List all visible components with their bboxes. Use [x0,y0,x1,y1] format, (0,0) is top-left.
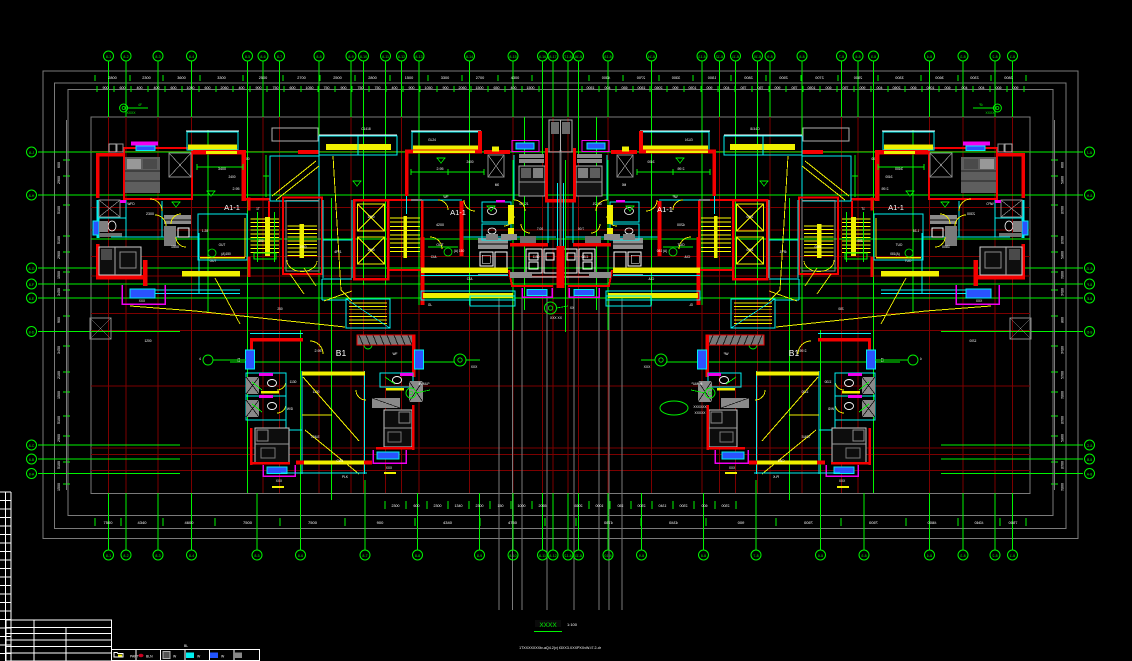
svg-text:XX: XX [570,306,575,310]
svg-text:XXX XX: XXX XX [550,316,563,320]
svg-text:A1-1: A1-1 [657,205,673,214]
svg-text:B1: B1 [789,348,800,358]
svg-text:B1: B1 [336,348,347,358]
svg-text:A1-1: A1-1 [224,203,240,212]
svg-text:XXXXX: XXXXX [695,411,707,415]
svg-text:PART: PART [130,655,139,659]
svg-text:BL: BL [184,644,188,648]
svg-text:1:100: 1:100 [567,622,578,627]
svg-text:XXXX: XXXX [539,622,557,629]
svg-text:BLN: BLN [146,655,153,659]
svg-text:XXXXXX: XXXXXX [693,405,707,409]
svg-text:1TXXXXXXXtv-aQ4.2(v) t3XX3.XX: 1TXXXXXXXtv-aQ4.2(v) t3XX3.XXXPXXvW-t7.2… [519,646,602,650]
svg-text:A1-1: A1-1 [888,203,904,212]
svg-text:A1-1: A1-1 [450,208,466,217]
